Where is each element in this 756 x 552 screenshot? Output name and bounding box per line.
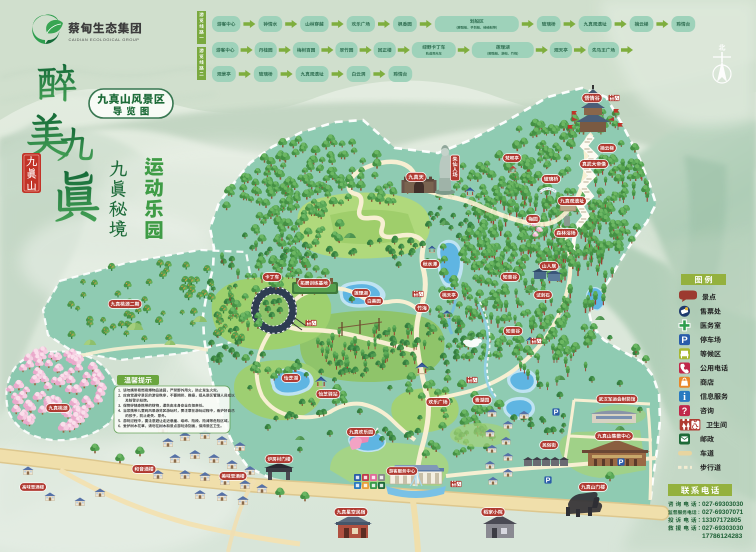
svg-text:13307172805: 13307172805 [702, 517, 742, 524]
svg-text:027-69303030: 027-69303030 [702, 501, 744, 508]
svg-text:CAIDIAN ECOLOGICAL GROUP: CAIDIAN ECOLOGICAL GROUP [69, 37, 140, 42]
svg-text:?: ? [682, 406, 688, 416]
svg-text:i: i [683, 392, 686, 403]
svg-text:027-69303030: 027-69303030 [702, 525, 744, 532]
svg-text:17786124283: 17786124283 [702, 533, 743, 540]
svg-text:P: P [681, 335, 688, 346]
svg-text:027-69307071: 027-69307071 [702, 509, 744, 516]
